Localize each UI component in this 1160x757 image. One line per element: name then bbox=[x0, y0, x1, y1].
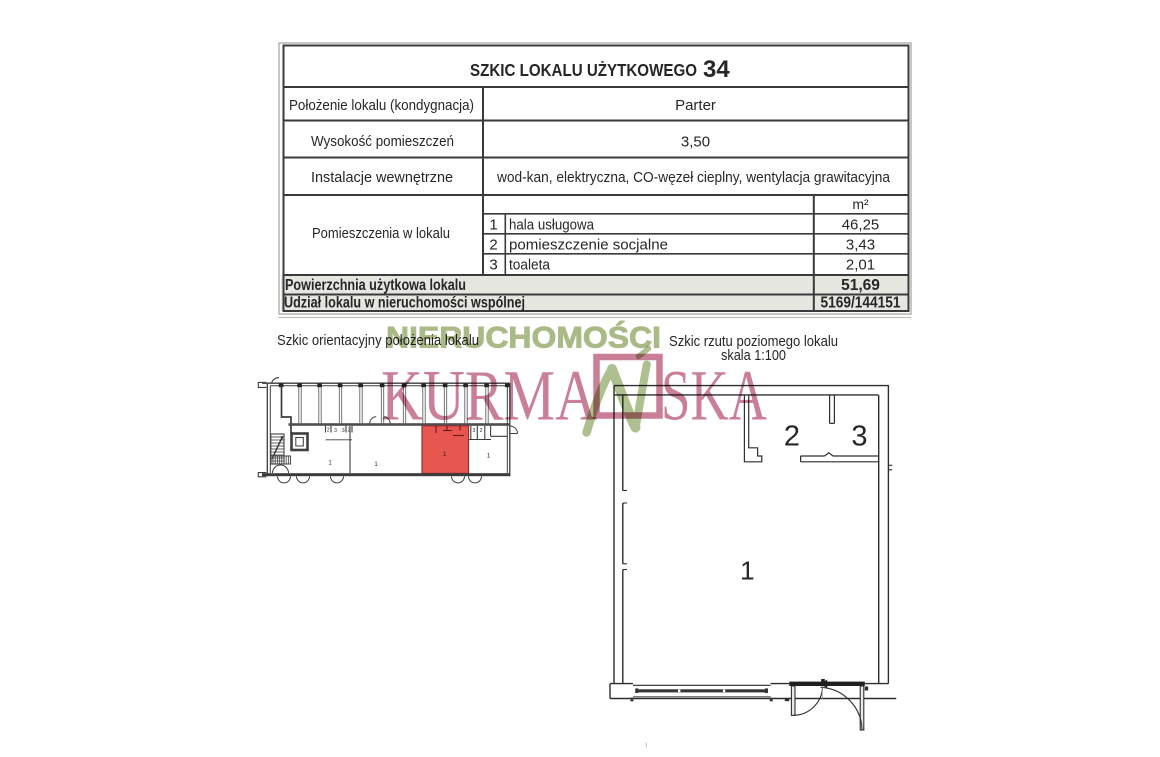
svg-text:Parter: Parter bbox=[675, 97, 716, 114]
svg-text:51,69: 51,69 bbox=[841, 277, 880, 294]
svg-text:5169/144151: 5169/144151 bbox=[821, 295, 901, 312]
svg-text:toaleta: toaleta bbox=[509, 257, 551, 274]
svg-text:Instalacje wewnętrzne: Instalacje wewnętrzne bbox=[311, 169, 453, 186]
svg-text:Pomieszczenia w lokalu: Pomieszczenia w lokalu bbox=[312, 225, 450, 242]
svg-text:Powierzchnia użytkowa lokalu: Powierzchnia użytkowa lokalu bbox=[285, 277, 466, 294]
svg-text:2: 2 bbox=[489, 237, 497, 254]
svg-text:1: 1 bbox=[489, 217, 497, 234]
svg-text:m²: m² bbox=[852, 196, 869, 212]
svg-text:SZKIC LOKALU UŻYTKOWEGO: SZKIC LOKALU UŻYTKOWEGO bbox=[470, 60, 697, 80]
svg-text:hala usługowa: hala usługowa bbox=[509, 217, 595, 234]
svg-text:NIERUCHOMOŚCI: NIERUCHOMOŚCI bbox=[386, 321, 661, 355]
svg-text:pomieszczenie socjalne: pomieszczenie socjalne bbox=[509, 237, 668, 254]
svg-text:2: 2 bbox=[327, 428, 330, 434]
svg-text:1: 1 bbox=[328, 461, 332, 467]
svg-text:34: 34 bbox=[703, 56, 730, 83]
svg-text:2: 2 bbox=[348, 428, 351, 434]
svg-text:3: 3 bbox=[342, 428, 345, 434]
svg-text:1: 1 bbox=[374, 462, 378, 468]
svg-text:3: 3 bbox=[851, 421, 867, 453]
svg-text:KURMA: KURMA bbox=[381, 356, 597, 436]
svg-text:Udział lokalu w nieruchomości: Udział lokalu w nieruchomości wspólnej bbox=[284, 295, 525, 312]
svg-text:1: 1 bbox=[740, 556, 754, 586]
svg-text:Położenie lokalu (kondygnacja): Położenie lokalu (kondygnacja) bbox=[289, 97, 474, 114]
svg-text:3,50: 3,50 bbox=[681, 134, 710, 151]
svg-text:46,25: 46,25 bbox=[842, 217, 880, 234]
svg-text:2,01: 2,01 bbox=[846, 257, 875, 274]
svg-text:3,43: 3,43 bbox=[846, 237, 875, 254]
svg-text:3: 3 bbox=[334, 428, 337, 434]
svg-text:Wysokość pomieszczeń: Wysokość pomieszczeń bbox=[311, 133, 454, 150]
svg-text:1: 1 bbox=[487, 454, 491, 460]
svg-text:wod-kan, elektryczna, CO-węzeł: wod-kan, elektryczna, CO-węzeł cieplny, … bbox=[496, 169, 891, 186]
svg-text:2: 2 bbox=[784, 421, 800, 453]
svg-text:SKA: SKA bbox=[661, 356, 767, 436]
svg-text:3: 3 bbox=[489, 257, 497, 274]
